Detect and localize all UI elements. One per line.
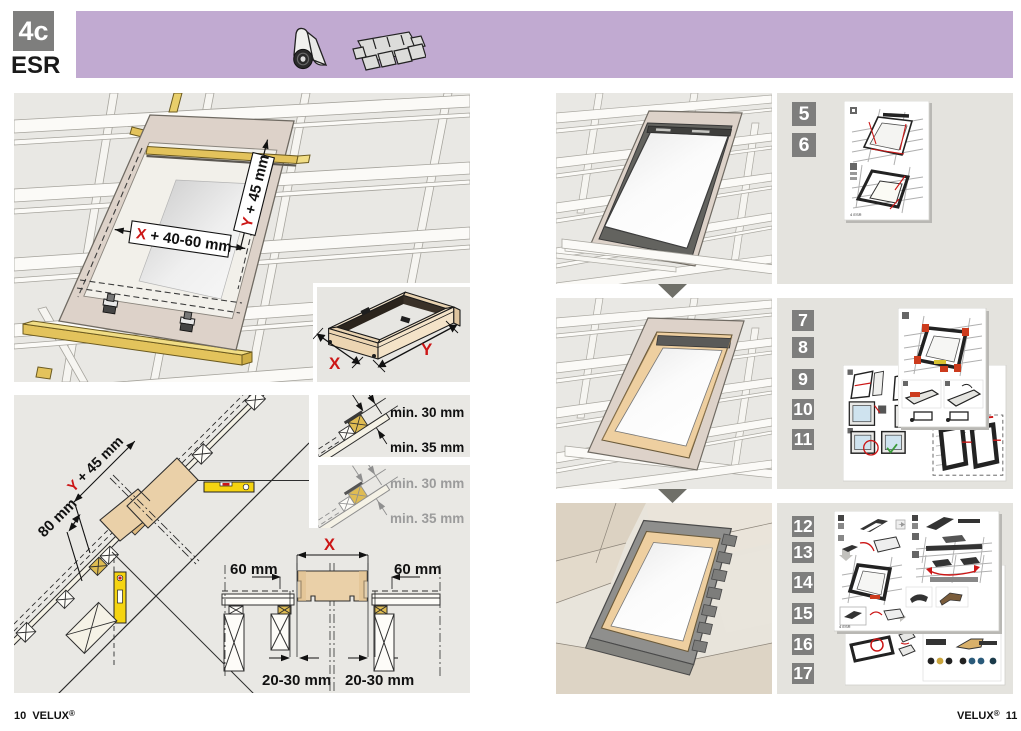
svg-text:4 ESR: 4 ESR — [850, 212, 862, 217]
svg-text:min. 35 mm: min. 35 mm — [390, 440, 464, 455]
svg-text:min. 30 mm: min. 30 mm — [390, 476, 464, 491]
svg-text:20-30 mm: 20-30 mm — [262, 672, 331, 689]
svg-text:4 ESR: 4 ESR — [839, 624, 851, 629]
svg-text:60 mm: 60 mm — [230, 561, 278, 578]
svg-text:60 mm: 60 mm — [394, 561, 442, 578]
svg-text:20-30 mm: 20-30 mm — [345, 672, 414, 689]
svg-text:X: X — [329, 354, 341, 373]
svg-text:min. 35 mm: min. 35 mm — [390, 511, 464, 526]
svg-text:X: X — [324, 536, 335, 554]
svg-text:Y: Y — [421, 340, 433, 359]
svg-text:min. 30 mm: min. 30 mm — [390, 405, 464, 420]
